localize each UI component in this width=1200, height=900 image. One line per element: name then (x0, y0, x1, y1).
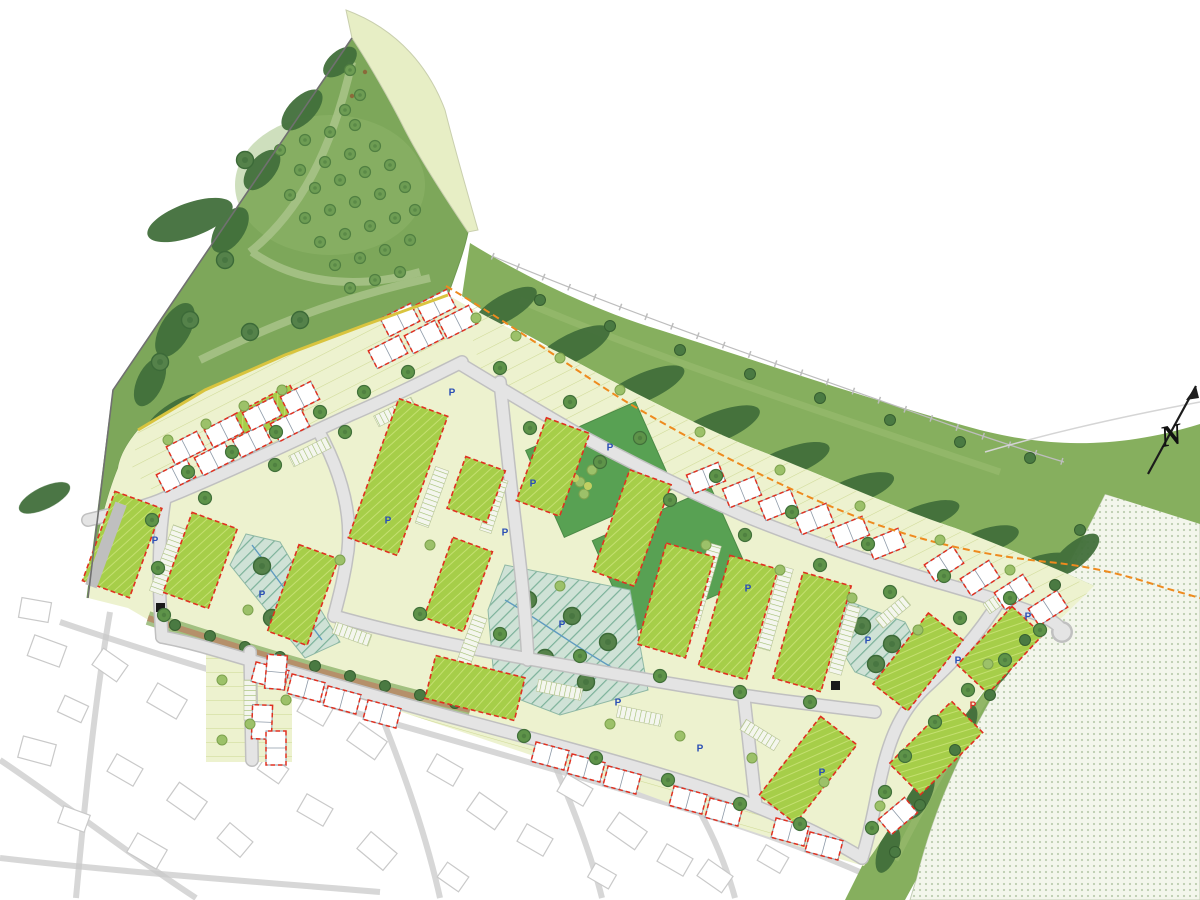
site-masterplan-drawing: PPPPPPPPPPPPPPPP N (0, 0, 1200, 900)
parking-marker: P (819, 768, 826, 779)
parking-marker: P (970, 701, 977, 712)
masterplan-canvas: PPPPPPPPPPPPPPPP N (0, 0, 1200, 900)
pumping-station (831, 681, 840, 690)
parking-marker: P (745, 584, 752, 595)
parking-marker: P (865, 636, 872, 647)
parking-marker: P (385, 516, 392, 527)
parking-marker: P (530, 479, 537, 490)
parking-marker: P (607, 443, 614, 454)
parking-marker: P (1025, 612, 1032, 623)
parking-marker: P (615, 698, 622, 709)
parking-marker: P (559, 620, 566, 631)
parking-marker: P (502, 528, 509, 539)
parking-marker: P (152, 536, 159, 547)
parking-marker: P (955, 656, 962, 667)
north-arrow-head (1186, 386, 1199, 400)
parking-marker: P (259, 590, 266, 601)
parking-marker: P (449, 388, 456, 399)
parking-marker: P (697, 744, 704, 755)
